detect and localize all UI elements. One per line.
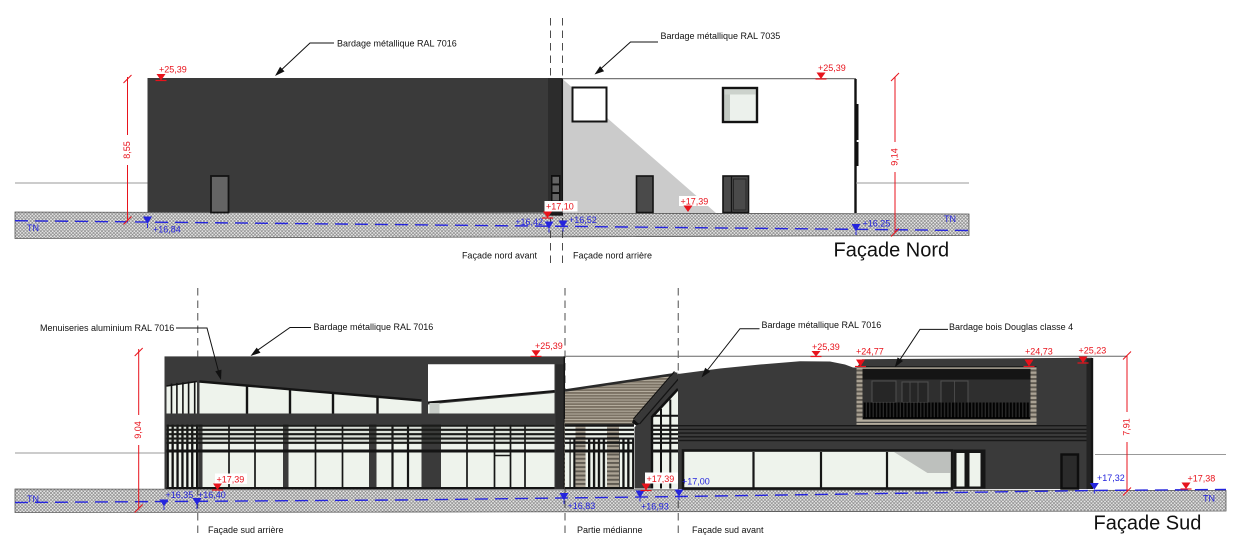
svg-text:Façade sud arrière: Façade sud arrière <box>208 525 284 535</box>
svg-text:TN: TN <box>944 214 956 224</box>
svg-text:+16,83: +16,83 <box>568 501 596 511</box>
svg-text:+25,39: +25,39 <box>812 342 840 352</box>
svg-text:+16,35: +16,35 <box>166 490 194 500</box>
svg-text:+17,39: +17,39 <box>647 474 675 484</box>
svg-text:+25,39: +25,39 <box>535 341 563 351</box>
svg-text:+17,39: +17,39 <box>681 197 709 207</box>
svg-text:Bardage bois Douglas classe 4: Bardage bois Douglas classe 4 <box>949 322 1073 332</box>
svg-text:9,14: 9,14 <box>890 148 900 166</box>
svg-text:9,04: 9,04 <box>133 421 143 439</box>
svg-text:+17,00: +17,00 <box>682 477 710 487</box>
svg-text:+17,32: +17,32 <box>1097 473 1125 483</box>
svg-text:+16,25: +16,25 <box>863 219 891 229</box>
svg-text:Menuiseries aluminium RAL 7016: Menuiseries aluminium RAL 7016 <box>40 323 174 333</box>
svg-text:+16,93: +16,93 <box>641 502 669 512</box>
svg-text:+17,38: +17,38 <box>1188 474 1216 484</box>
svg-text:Bardage métallique RAL 7016: Bardage métallique RAL 7016 <box>314 322 434 332</box>
svg-text:Bardage métallique RAL 7035: Bardage métallique RAL 7035 <box>661 31 781 41</box>
svg-text:+25,39: +25,39 <box>159 65 187 75</box>
svg-text:+17,10: +17,10 <box>546 202 574 212</box>
svg-text:7,91: 7,91 <box>1122 418 1132 436</box>
svg-text:Façade nord avant: Façade nord avant <box>462 251 538 261</box>
svg-text:+25,39: +25,39 <box>818 63 846 73</box>
svg-text:+24,77: +24,77 <box>856 347 884 357</box>
svg-text:+17,39: +17,39 <box>217 475 245 485</box>
svg-text:TN: TN <box>27 223 39 233</box>
svg-text:Partie médianne: Partie médianne <box>577 525 643 535</box>
svg-text:+16,40: +16,40 <box>198 490 226 500</box>
svg-text:Façade nord arrière: Façade nord arrière <box>573 251 652 261</box>
svg-text:+24,73: +24,73 <box>1025 347 1053 357</box>
svg-text:Façade Sud: Façade Sud <box>1094 513 1202 535</box>
svg-text:TN: TN <box>27 494 39 504</box>
svg-text:+16,42: +16,42 <box>515 217 543 227</box>
svg-text:+16,52: +16,52 <box>569 215 597 225</box>
svg-text:8,55: 8,55 <box>122 141 132 159</box>
svg-text:Façade Nord: Façade Nord <box>834 239 950 261</box>
svg-text:Bardage métallique RAL 7016: Bardage métallique RAL 7016 <box>762 320 882 330</box>
svg-text:Façade sud avant: Façade sud avant <box>692 525 764 535</box>
svg-text:+25,23: +25,23 <box>1079 346 1107 356</box>
svg-text:+16,84: +16,84 <box>153 225 181 235</box>
svg-text:Bardage métallique RAL 7016: Bardage métallique RAL 7016 <box>337 39 457 49</box>
svg-text:TN: TN <box>1203 494 1215 504</box>
